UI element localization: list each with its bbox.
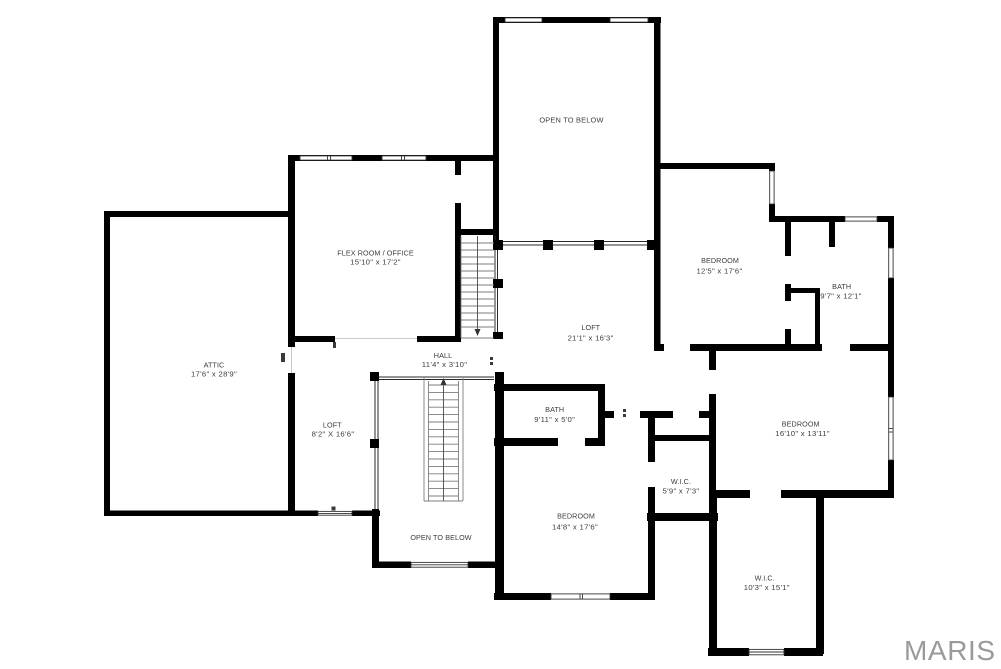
svg-text:HALL: HALL bbox=[434, 351, 452, 360]
svg-text:16'10" x 13'11": 16'10" x 13'11" bbox=[775, 429, 830, 438]
svg-text:21'1" x 16'3": 21'1" x 16'3" bbox=[568, 334, 614, 343]
svg-text:W.I.C.: W.I.C. bbox=[755, 574, 775, 583]
svg-text:LOFT: LOFT bbox=[581, 323, 600, 332]
svg-text:OPEN TO BELOW: OPEN TO BELOW bbox=[410, 533, 471, 542]
svg-text:MARIS: MARIS bbox=[904, 635, 996, 666]
svg-text:5'9" x 7'3": 5'9" x 7'3" bbox=[663, 487, 700, 496]
svg-text:9'7" x 12'1": 9'7" x 12'1" bbox=[820, 292, 862, 301]
svg-text:11'4" x 3'10": 11'4" x 3'10" bbox=[422, 360, 468, 369]
svg-text:BATH: BATH bbox=[832, 282, 851, 291]
svg-text:LOFT: LOFT bbox=[323, 421, 342, 430]
svg-text:FLEX ROOM / OFFICE: FLEX ROOM / OFFICE bbox=[337, 249, 414, 258]
svg-text:ATTIC: ATTIC bbox=[204, 361, 225, 370]
svg-text:BEDROOM: BEDROOM bbox=[782, 420, 820, 429]
svg-text:BEDROOM: BEDROOM bbox=[701, 256, 739, 265]
svg-text:14'8" x 17'6": 14'8" x 17'6" bbox=[552, 523, 598, 532]
svg-text:9'11" x 5'0": 9'11" x 5'0" bbox=[534, 415, 575, 424]
svg-text:OPEN TO BELOW: OPEN TO BELOW bbox=[539, 116, 603, 125]
svg-text:8'2" X 16'6": 8'2" X 16'6" bbox=[312, 430, 355, 439]
svg-text:17'6" x 28'9": 17'6" x 28'9" bbox=[191, 370, 237, 379]
svg-text:BATH: BATH bbox=[545, 405, 564, 414]
svg-text:12'5" x 17'6": 12'5" x 17'6" bbox=[696, 267, 742, 276]
svg-text:W.I.C.: W.I.C. bbox=[671, 477, 691, 486]
svg-text:15'10" x 17'2": 15'10" x 17'2" bbox=[350, 258, 401, 267]
svg-text:10'3" x 15'1": 10'3" x 15'1" bbox=[744, 583, 790, 592]
svg-text:BEDROOM: BEDROOM bbox=[557, 512, 595, 521]
